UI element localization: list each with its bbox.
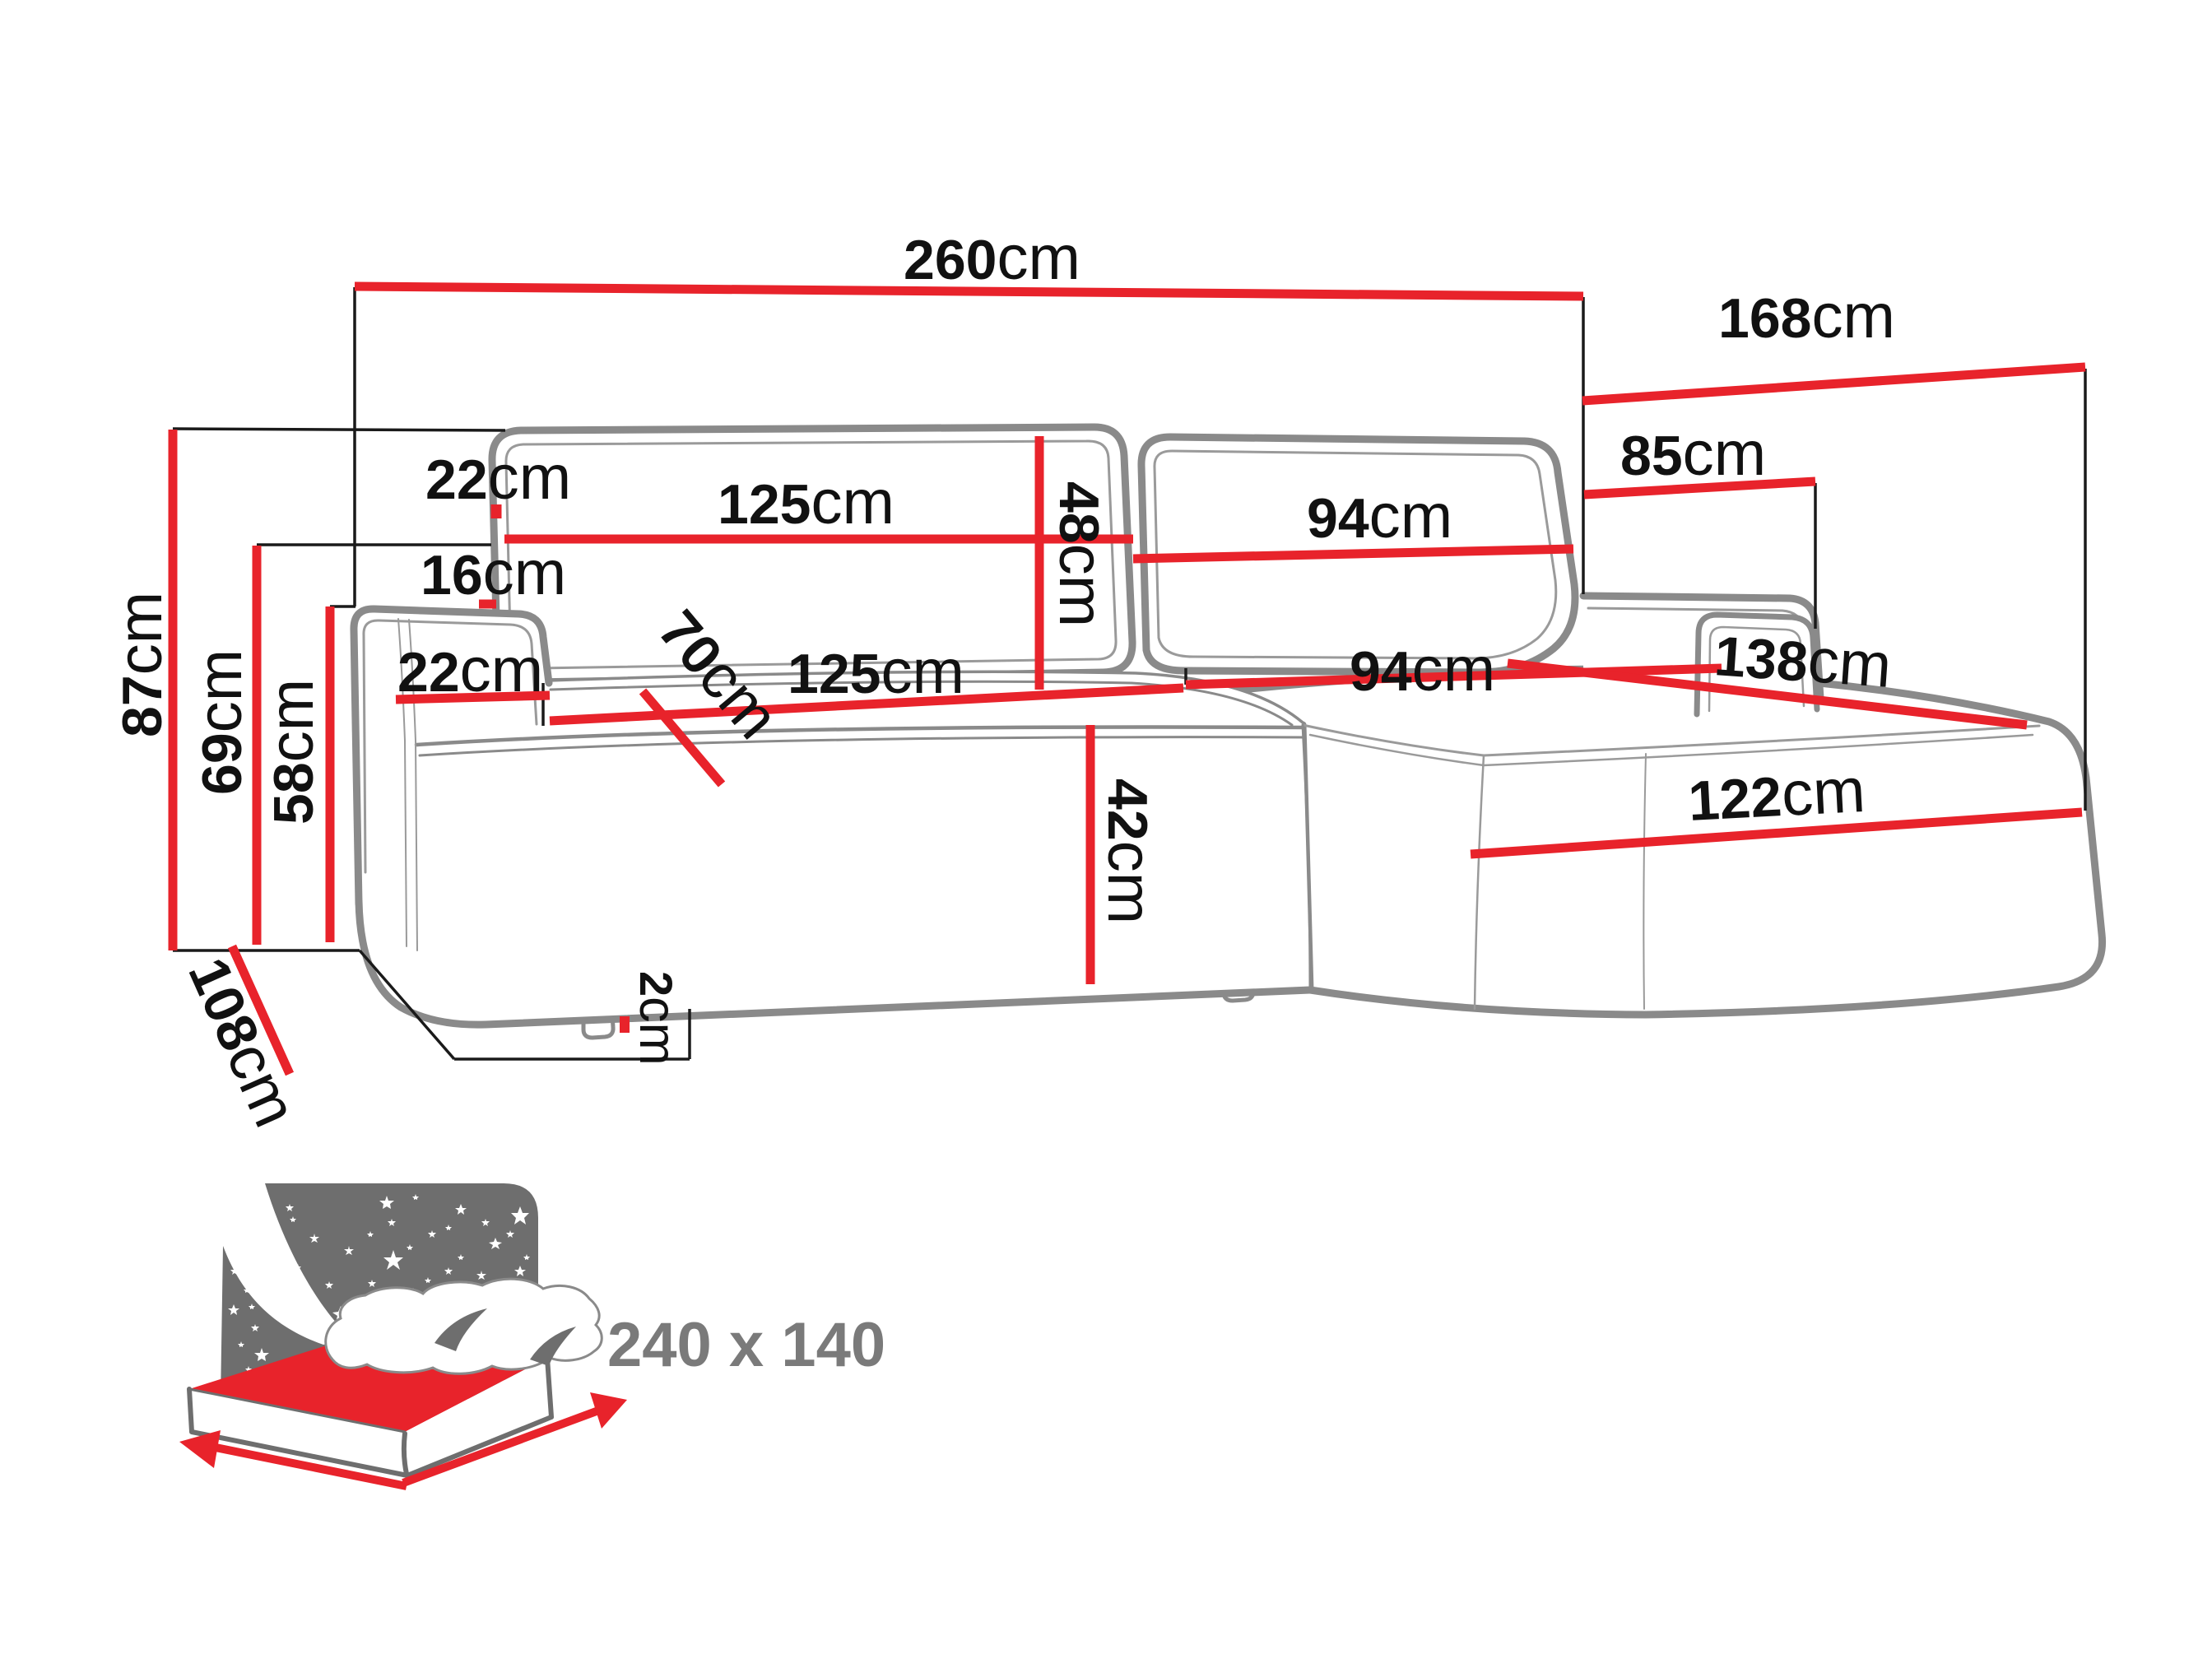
svg-text:16cm: 16cm bbox=[421, 538, 566, 608]
svg-text:125cm: 125cm bbox=[718, 467, 895, 537]
svg-text:240 x 140: 240 x 140 bbox=[607, 1310, 885, 1380]
svg-text:22cm: 22cm bbox=[397, 635, 543, 705]
svg-text:85cm: 85cm bbox=[1620, 419, 1766, 489]
svg-text:69cm: 69cm bbox=[185, 649, 255, 795]
svg-text:2cm: 2cm bbox=[629, 971, 686, 1066]
svg-text:42cm: 42cm bbox=[1094, 778, 1164, 924]
svg-text:87cm: 87cm bbox=[105, 592, 175, 737]
svg-text:94cm: 94cm bbox=[1350, 634, 1495, 704]
svg-text:22cm: 22cm bbox=[425, 443, 571, 513]
svg-text:138cm: 138cm bbox=[1712, 619, 1894, 701]
svg-text:108cm: 108cm bbox=[174, 946, 310, 1136]
svg-text:260cm: 260cm bbox=[904, 223, 1080, 293]
svg-text:125cm: 125cm bbox=[788, 637, 964, 707]
svg-text:94cm: 94cm bbox=[1307, 481, 1452, 551]
svg-text:168cm: 168cm bbox=[1718, 281, 1895, 351]
svg-text:58cm: 58cm bbox=[257, 679, 327, 825]
svg-text:48cm: 48cm bbox=[1046, 481, 1116, 627]
